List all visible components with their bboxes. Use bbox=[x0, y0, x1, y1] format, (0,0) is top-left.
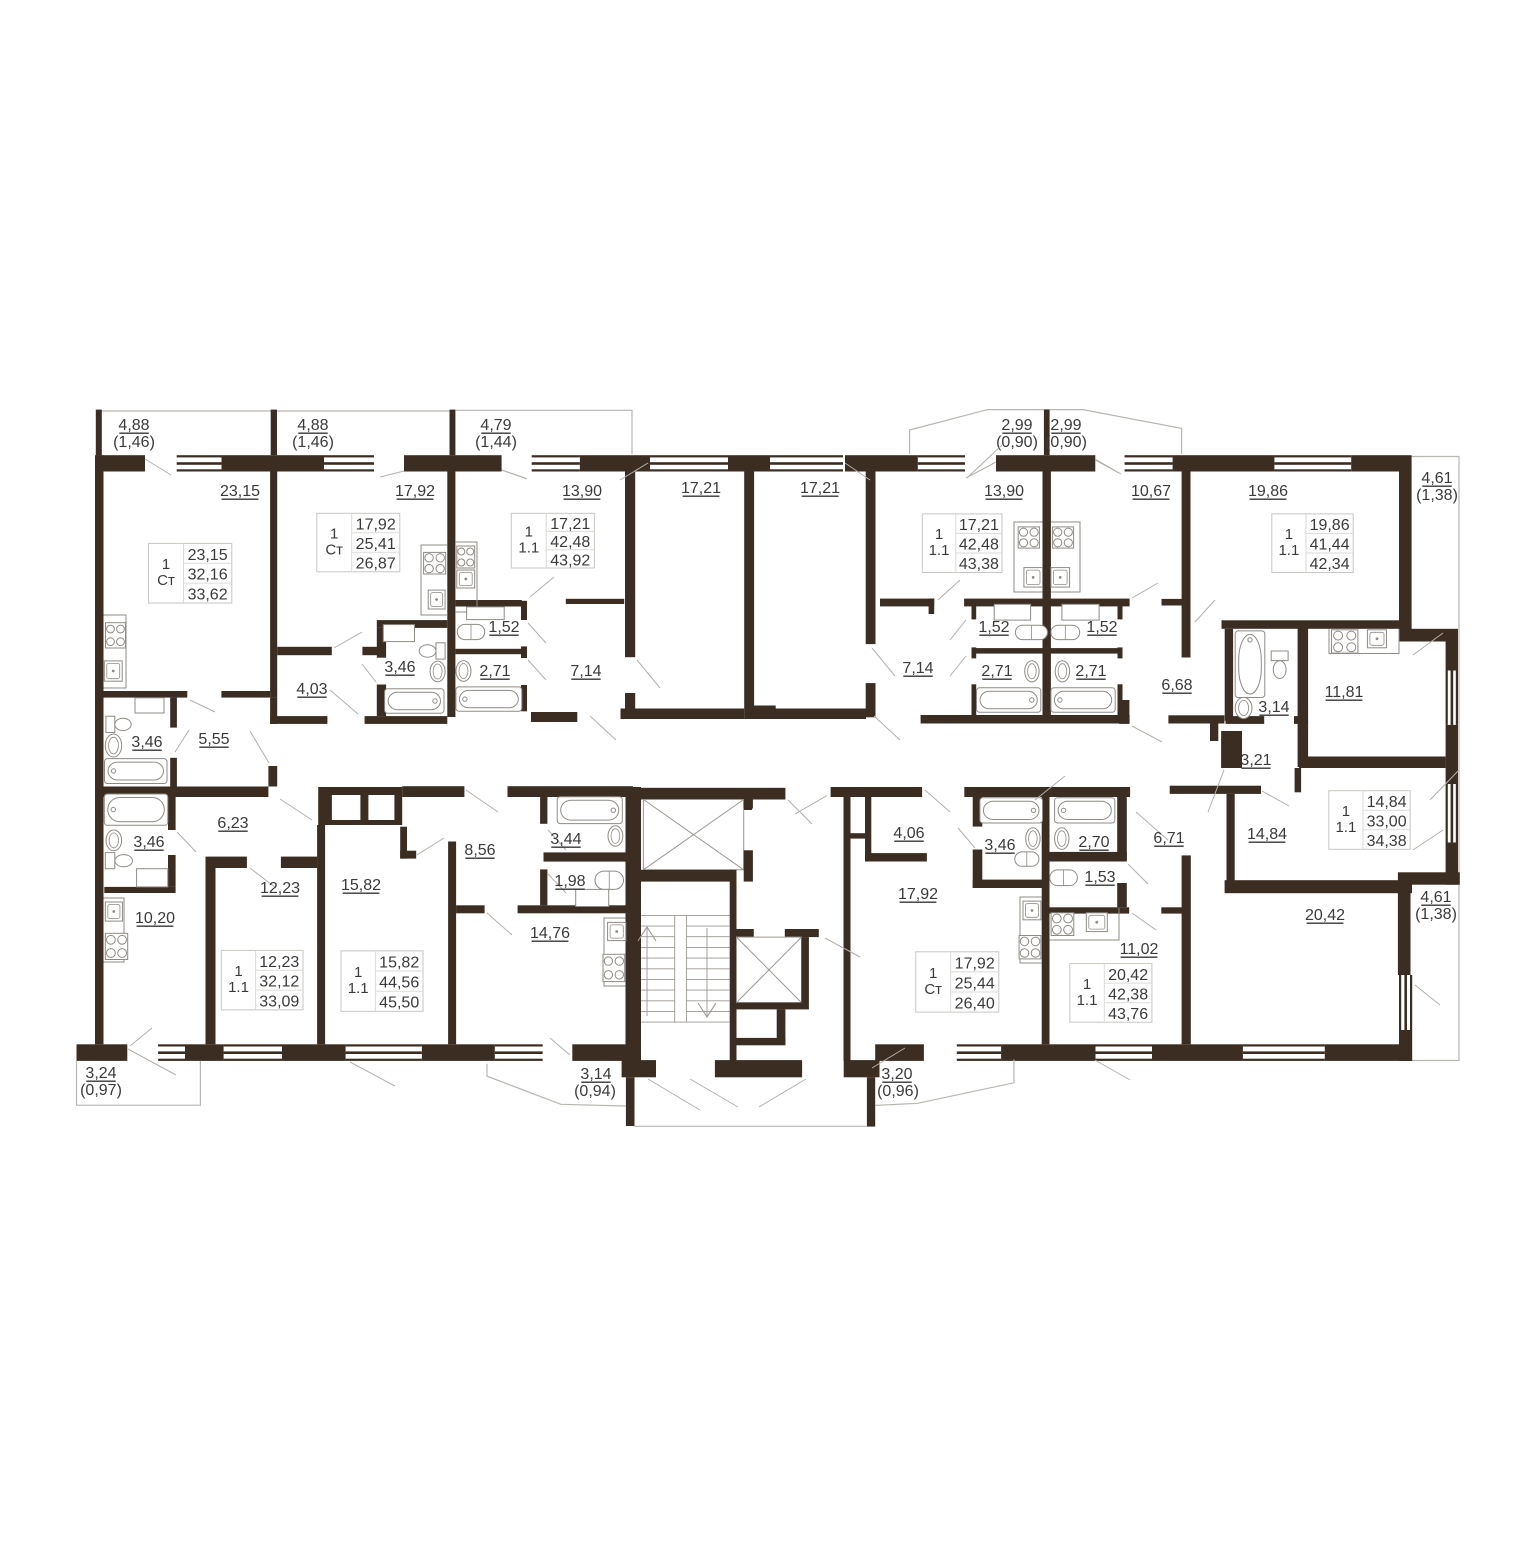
svg-text:17,92: 17,92 bbox=[898, 886, 938, 903]
svg-text:11,81: 11,81 bbox=[1325, 684, 1364, 701]
svg-text:2,71: 2,71 bbox=[981, 663, 1012, 680]
svg-text:3,44: 3,44 bbox=[550, 831, 581, 848]
svg-text:26,40: 26,40 bbox=[955, 996, 995, 1013]
svg-text:Ст: Ст bbox=[157, 572, 175, 589]
svg-text:42,48: 42,48 bbox=[550, 534, 590, 551]
svg-text:44,56: 44,56 bbox=[379, 975, 419, 992]
svg-text:4,06: 4,06 bbox=[893, 825, 924, 842]
svg-text:7,14: 7,14 bbox=[570, 663, 601, 680]
svg-text:23,15: 23,15 bbox=[220, 483, 260, 500]
svg-text:1: 1 bbox=[1342, 803, 1350, 820]
svg-text:25,41: 25,41 bbox=[356, 536, 396, 553]
svg-text:2,71: 2,71 bbox=[1075, 663, 1106, 680]
svg-text:4,88: 4,88 bbox=[118, 417, 149, 434]
svg-text:17,21: 17,21 bbox=[800, 480, 840, 497]
svg-text:6,23: 6,23 bbox=[217, 815, 248, 832]
svg-text:25,44: 25,44 bbox=[955, 976, 995, 993]
svg-text:4,61: 4,61 bbox=[1420, 889, 1451, 906]
svg-text:1,52: 1,52 bbox=[488, 619, 519, 636]
svg-text:33,09: 33,09 bbox=[259, 994, 299, 1011]
svg-text:42,38: 42,38 bbox=[1108, 986, 1148, 1003]
svg-text:13,90: 13,90 bbox=[562, 483, 602, 500]
svg-text:(0,94): (0,94) bbox=[574, 1083, 616, 1100]
svg-text:26,87: 26,87 bbox=[356, 556, 396, 573]
svg-text:3,21: 3,21 bbox=[1240, 752, 1271, 769]
svg-text:17,92: 17,92 bbox=[395, 483, 435, 500]
svg-text:3,46: 3,46 bbox=[384, 659, 415, 676]
svg-text:1.1: 1.1 bbox=[348, 980, 369, 997]
svg-text:17,21: 17,21 bbox=[550, 516, 590, 533]
svg-text:1: 1 bbox=[234, 963, 242, 980]
svg-text:12,23: 12,23 bbox=[259, 954, 299, 971]
svg-text:3,20: 3,20 bbox=[881, 1066, 912, 1083]
svg-text:17,92: 17,92 bbox=[356, 517, 396, 534]
svg-text:(1,38): (1,38) bbox=[1416, 487, 1458, 504]
svg-text:1.1: 1.1 bbox=[1335, 819, 1356, 836]
svg-text:4,03: 4,03 bbox=[296, 681, 327, 698]
svg-text:(0,90): (0,90) bbox=[1045, 434, 1087, 451]
svg-text:1: 1 bbox=[354, 964, 362, 981]
svg-text:1: 1 bbox=[525, 524, 533, 541]
svg-text:1.1: 1.1 bbox=[228, 979, 249, 996]
svg-text:4,61: 4,61 bbox=[1421, 470, 1452, 487]
svg-text:2,99: 2,99 bbox=[1001, 417, 1032, 434]
svg-text:32,12: 32,12 bbox=[259, 974, 299, 991]
svg-text:1: 1 bbox=[162, 556, 170, 573]
svg-text:3,14: 3,14 bbox=[580, 1066, 611, 1083]
svg-text:1.1: 1.1 bbox=[518, 540, 539, 557]
svg-text:23,15: 23,15 bbox=[188, 547, 228, 564]
svg-text:(1,46): (1,46) bbox=[292, 434, 334, 451]
svg-text:2,99: 2,99 bbox=[1050, 417, 1081, 434]
svg-text:12,23: 12,23 bbox=[260, 880, 300, 897]
svg-text:17,21: 17,21 bbox=[681, 480, 721, 497]
svg-text:43,92: 43,92 bbox=[550, 552, 590, 569]
svg-text:1,98: 1,98 bbox=[554, 873, 585, 890]
svg-text:2,70: 2,70 bbox=[1078, 834, 1109, 851]
svg-text:14,84: 14,84 bbox=[1247, 826, 1287, 843]
svg-text:10,20: 10,20 bbox=[135, 910, 175, 927]
svg-text:1.1: 1.1 bbox=[1077, 992, 1098, 1009]
svg-text:43,38: 43,38 bbox=[959, 556, 999, 573]
svg-text:1,52: 1,52 bbox=[978, 619, 1009, 636]
svg-text:45,50: 45,50 bbox=[379, 995, 419, 1012]
svg-text:Ст: Ст bbox=[325, 542, 343, 559]
svg-text:19,86: 19,86 bbox=[1248, 483, 1288, 500]
svg-text:42,34: 42,34 bbox=[1310, 556, 1350, 573]
svg-text:(1,38): (1,38) bbox=[1415, 906, 1457, 923]
svg-text:42,48: 42,48 bbox=[959, 537, 999, 554]
svg-text:6,71: 6,71 bbox=[1153, 830, 1184, 847]
svg-text:5,55: 5,55 bbox=[198, 731, 229, 748]
svg-text:20,42: 20,42 bbox=[1305, 907, 1345, 924]
svg-text:14,84: 14,84 bbox=[1367, 794, 1407, 811]
svg-text:17,21: 17,21 bbox=[959, 517, 999, 534]
svg-text:15,82: 15,82 bbox=[379, 955, 419, 972]
svg-text:(0,97): (0,97) bbox=[80, 1082, 122, 1099]
svg-text:41,44: 41,44 bbox=[1310, 537, 1350, 554]
svg-text:3,46: 3,46 bbox=[984, 837, 1015, 854]
svg-text:3,46: 3,46 bbox=[131, 734, 162, 751]
svg-text:17,92: 17,92 bbox=[955, 955, 995, 972]
svg-text:20,42: 20,42 bbox=[1108, 967, 1148, 984]
svg-text:3,14: 3,14 bbox=[1258, 699, 1289, 716]
svg-text:1,52: 1,52 bbox=[1086, 619, 1117, 636]
svg-text:1.1: 1.1 bbox=[929, 542, 950, 559]
svg-text:2,71: 2,71 bbox=[479, 663, 510, 680]
svg-text:19,86: 19,86 bbox=[1310, 517, 1350, 534]
svg-text:32,16: 32,16 bbox=[188, 567, 228, 584]
svg-text:(0,90): (0,90) bbox=[996, 434, 1038, 451]
svg-text:1.1: 1.1 bbox=[1278, 542, 1299, 559]
svg-text:11,02: 11,02 bbox=[1120, 941, 1159, 958]
svg-text:33,62: 33,62 bbox=[188, 587, 228, 604]
svg-text:(1,44): (1,44) bbox=[475, 434, 517, 451]
svg-text:34,38: 34,38 bbox=[1367, 833, 1407, 850]
svg-text:14,76: 14,76 bbox=[530, 925, 570, 942]
svg-text:43,76: 43,76 bbox=[1108, 1006, 1148, 1023]
svg-text:6,68: 6,68 bbox=[1161, 677, 1192, 694]
svg-text:(1,46): (1,46) bbox=[113, 434, 155, 451]
svg-text:13,90: 13,90 bbox=[984, 483, 1024, 500]
svg-text:15,82: 15,82 bbox=[341, 877, 381, 894]
svg-text:8,56: 8,56 bbox=[464, 842, 495, 859]
svg-text:3,46: 3,46 bbox=[133, 834, 164, 851]
svg-text:3,24: 3,24 bbox=[85, 1065, 116, 1082]
svg-text:(0,96): (0,96) bbox=[877, 1083, 919, 1100]
svg-text:1: 1 bbox=[1285, 526, 1293, 543]
svg-text:4,79: 4,79 bbox=[480, 417, 511, 434]
svg-text:10,67: 10,67 bbox=[1131, 483, 1171, 500]
svg-text:1: 1 bbox=[929, 965, 937, 982]
svg-text:7,14: 7,14 bbox=[902, 660, 933, 677]
svg-text:33,00: 33,00 bbox=[1367, 814, 1407, 831]
svg-text:1: 1 bbox=[935, 526, 943, 543]
svg-text:4,88: 4,88 bbox=[297, 417, 328, 434]
svg-text:Ст: Ст bbox=[924, 981, 942, 998]
svg-text:1: 1 bbox=[330, 526, 338, 543]
svg-text:1: 1 bbox=[1083, 976, 1091, 993]
svg-text:1,53: 1,53 bbox=[1084, 869, 1115, 886]
